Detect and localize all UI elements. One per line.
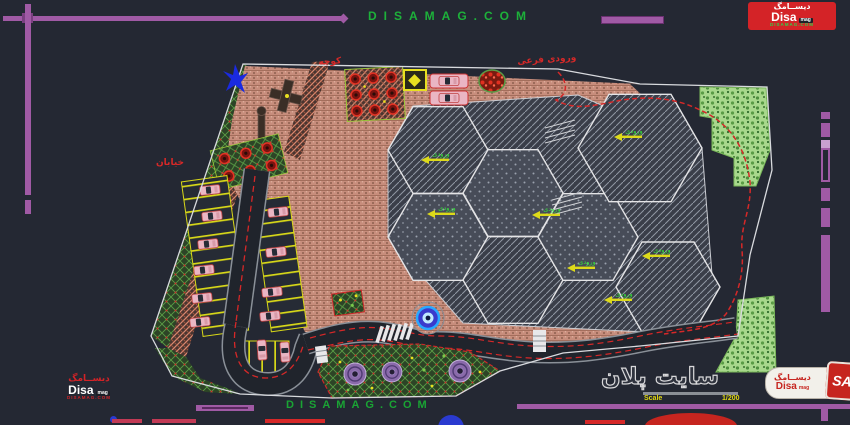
disamag-logo-bottom-right: دیســامگ Disa mag SA <box>765 367 850 399</box>
sa-monogram-icon: SA <box>825 361 850 401</box>
entrance-kiosk <box>404 70 426 90</box>
clipped-red-text <box>112 419 142 423</box>
clipped-red-text <box>265 419 325 423</box>
logo-name: Disa <box>776 382 797 392</box>
svg-text:ورودی: ورودی <box>438 204 455 212</box>
frame-top-right-bar <box>601 16 664 24</box>
disamag-logo-top-right: دیســامگ Disa mag DISAMAG.COM <box>748 2 836 30</box>
svg-text:ورودی: ورودی <box>543 205 560 213</box>
frame-right-dash <box>821 208 830 227</box>
frame-left-bar <box>25 4 31 195</box>
frame-right-dash <box>821 148 830 182</box>
logo-suffix: mag <box>799 386 809 391</box>
frame-top-bar <box>3 16 343 21</box>
scale-value: 1/200 <box>722 395 740 402</box>
logo-site-url: DISAMAG.COM <box>748 23 836 28</box>
clipped-red-text <box>585 420 625 424</box>
frame-bottom-bar <box>517 404 850 409</box>
frame-bottom-tick <box>821 409 828 421</box>
crosswalk-east <box>533 330 546 352</box>
svg-text:ورودی: ورودی <box>615 290 632 298</box>
frame-right-dash <box>821 140 830 148</box>
svg-text:ورودی: ورودی <box>432 150 449 158</box>
frame-right-dash <box>821 235 830 312</box>
watermark-bottom: DISAMAG.COM <box>286 399 433 411</box>
label-street: خیابان <box>156 158 184 168</box>
frame-bottom-left-bar <box>196 405 254 411</box>
frame-left-bar-seg <box>25 200 31 214</box>
flower-bed-round <box>479 70 505 92</box>
small-garden-square <box>332 290 365 316</box>
crosswalk-west <box>315 345 328 363</box>
watermark-top: DISAMAG.COM <box>368 9 533 23</box>
fountain <box>412 302 444 334</box>
label-alley: کوچه <box>318 56 342 67</box>
frame-right-dash <box>821 123 830 137</box>
svg-text:ورودی: ورودی <box>625 127 642 135</box>
svg-text:ورودی: ورودی <box>578 258 595 266</box>
svg-text:ورودی: ورودی <box>653 246 670 254</box>
disamag-logo-bottom-left: دیســامگ Disa mag DISAMAG.COM <box>58 375 120 401</box>
plan-title: سایت پلان <box>575 364 745 390</box>
flower-bed-grid-top <box>345 67 406 122</box>
frame-right-dash <box>821 188 830 201</box>
cad-canvas: ورودی ورودی ورودی ورودی ورودی ورودی ورود… <box>0 0 850 425</box>
frame-right-dash <box>821 112 830 119</box>
scale-label: Scale <box>644 395 662 402</box>
clipped-red-text <box>152 419 196 423</box>
site-plan-drawing: ورودی ورودی ورودی ورودی ورودی ورودی ورود… <box>0 0 850 425</box>
logo-site-url: DISAMAG.COM <box>58 396 120 401</box>
label-secondary-entrance: ورودی فرعی <box>517 53 577 67</box>
